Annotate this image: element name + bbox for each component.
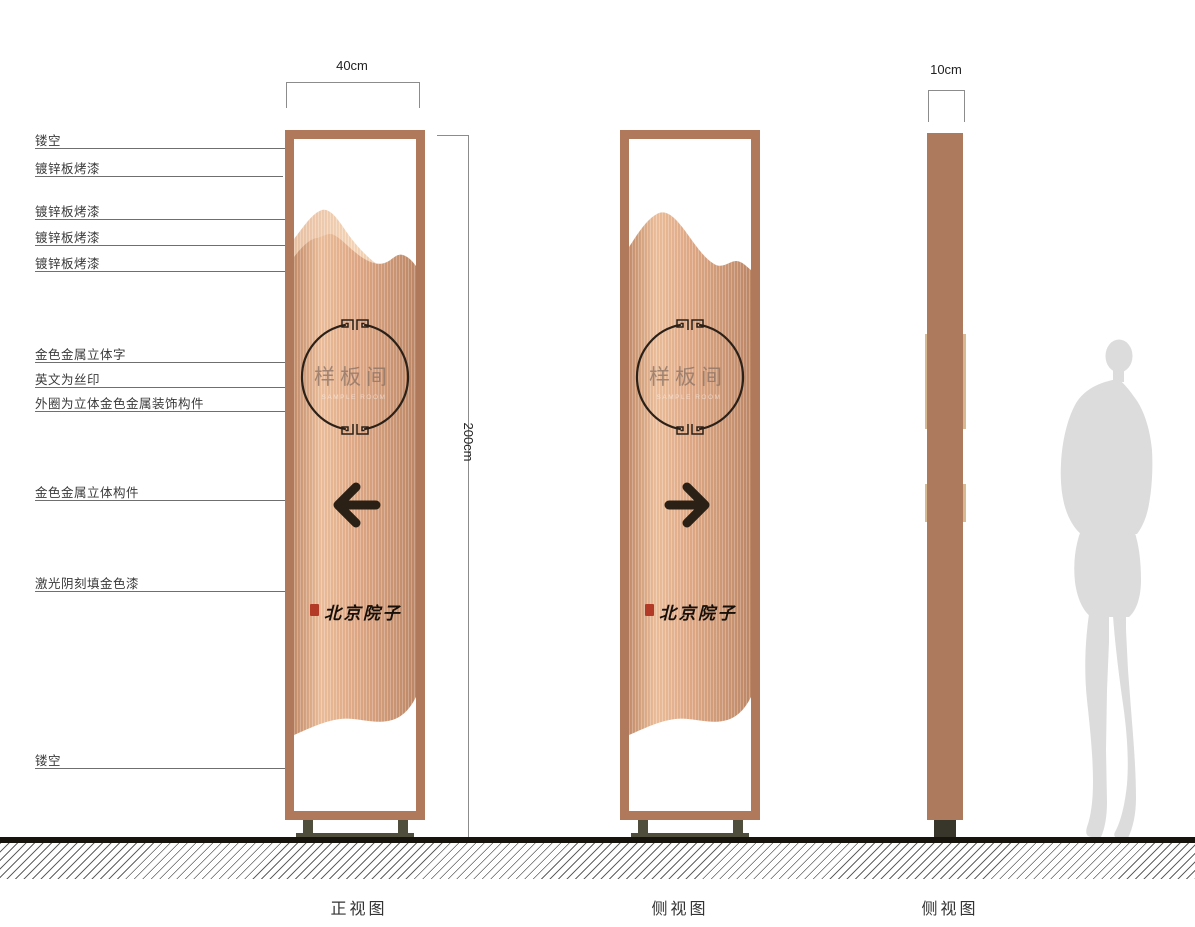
silhouette-hips xyxy=(1074,530,1141,617)
annotation-label: 镀锌板烤漆 xyxy=(35,201,100,220)
caption-side-view-2: 侧视图 xyxy=(890,895,1010,919)
ground-hatch xyxy=(0,843,1195,879)
dimension-depth-line xyxy=(928,90,965,91)
caption-side-view-1: 侧视图 xyxy=(620,895,740,919)
front-view-sign: 样板间 SAMPLE ROOM 北京院子 xyxy=(285,130,425,820)
dimension-height-tick xyxy=(437,135,468,136)
base-foot xyxy=(638,820,648,834)
circle-sub-label: SAMPLE ROOM xyxy=(657,394,722,401)
annotation-label: 镂空 xyxy=(35,130,61,149)
side-sign-panel: 样板间 SAMPLE ROOM 北京院子 xyxy=(629,139,751,811)
base-foot xyxy=(733,820,743,834)
annotation-label: 镀锌板烤漆 xyxy=(35,158,100,177)
leader-line xyxy=(35,245,295,246)
base-foot xyxy=(398,820,408,834)
human-silhouette xyxy=(1035,330,1175,840)
brand-mark: 北京院子 xyxy=(310,604,402,624)
silhouette-left-leg xyxy=(1085,614,1109,837)
profile-slab xyxy=(927,133,963,820)
dimension-height-line xyxy=(468,135,469,838)
silhouette-head xyxy=(1106,340,1133,373)
annotation-label: 镂空 xyxy=(35,750,61,769)
dimension-tick xyxy=(964,90,965,122)
silhouette-right-leg xyxy=(1113,616,1136,838)
front-sign-inner: 样板间 SAMPLE ROOM 北京院子 xyxy=(294,139,416,811)
brand-seal xyxy=(645,604,654,616)
circle-label: 样板间 xyxy=(314,366,392,389)
circle-label: 样板间 xyxy=(649,366,727,389)
dimension-height-label: 200cm xyxy=(460,411,476,473)
base-foot xyxy=(303,820,313,834)
side-view-sign: 样板间 SAMPLE ROOM 北京院子 xyxy=(620,130,760,820)
leader-line xyxy=(35,271,290,272)
dimension-tick xyxy=(928,90,929,122)
leader-line xyxy=(35,148,305,149)
annotation-label: 镀锌板烤漆 xyxy=(35,227,100,246)
annotation-label: 激光阴刻填金色漆 xyxy=(35,573,139,592)
front-sign-panel: 样板间 SAMPLE ROOM 北京院子 xyxy=(294,139,416,811)
dimension-width-line xyxy=(286,82,420,83)
circle-sub-label: SAMPLE ROOM xyxy=(322,394,387,401)
side-sign-inner: 样板间 SAMPLE ROOM 北京院子 xyxy=(629,139,751,811)
brand-seal xyxy=(310,604,319,616)
annotation-label: 金色金属立体字 xyxy=(35,344,126,363)
dimension-depth-label: 10cm xyxy=(906,62,986,77)
mountain-panel xyxy=(629,212,751,735)
leader-line xyxy=(35,176,283,177)
brand-text: 北京院子 xyxy=(324,604,402,624)
annotation-label: 镀锌板烤漆 xyxy=(35,253,100,272)
leader-line xyxy=(35,411,316,412)
annotation-label: 金色金属立体构件 xyxy=(35,482,139,501)
dimension-width-label: 40cm xyxy=(312,58,392,73)
dimension-tick xyxy=(286,82,287,108)
annotation-label: 外圈为立体金色金属装饰构件 xyxy=(35,393,204,412)
brand-text: 北京院子 xyxy=(659,604,737,624)
signage-spec-sheet: 镂空 镀锌板烤漆 镀锌板烤漆 镀锌板烤漆 镀锌板烤漆 金色金属立体字 英文为丝印… xyxy=(0,0,1195,927)
silhouette-torso xyxy=(1061,379,1153,534)
caption-front-view: 正视图 xyxy=(299,895,419,919)
brand-mark: 北京院子 xyxy=(645,604,737,624)
dimension-tick xyxy=(419,82,420,108)
annotation-label: 英文为丝印 xyxy=(35,369,100,388)
